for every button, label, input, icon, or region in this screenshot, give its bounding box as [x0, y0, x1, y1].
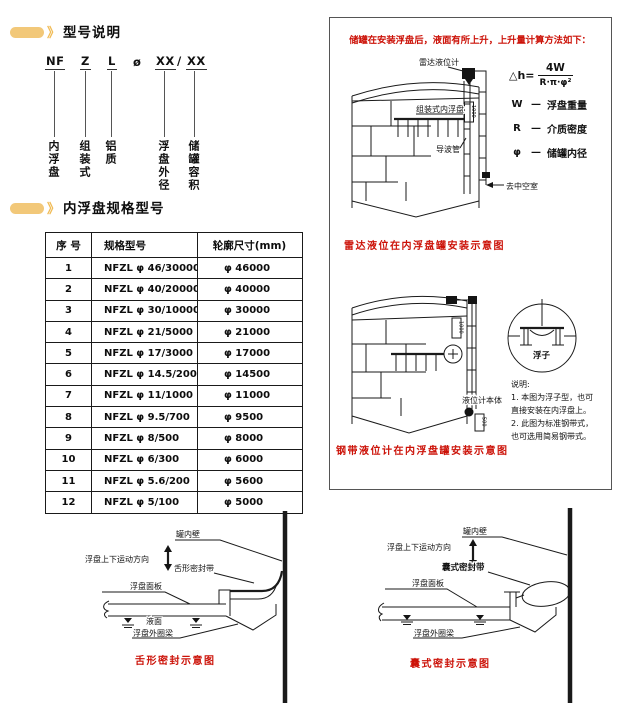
shell-course-line — [366, 320, 406, 416]
note-line: 直接安装在内浮盘上。 — [511, 405, 607, 418]
spec-cell: φ 8000 — [198, 428, 303, 449]
spec-row: 1NFZL φ 46/30000φ 46000 — [46, 258, 303, 279]
formula-lhs: △h= — [509, 69, 535, 82]
code-drop-line — [54, 71, 55, 137]
dimension-1000: 1000 — [470, 105, 476, 118]
spec-cell: φ 46000 — [198, 258, 303, 279]
liquid-hatch-line — [190, 625, 202, 628]
spec-cell: 3 — [46, 300, 92, 321]
legend-dash: — — [525, 99, 547, 110]
accent-badge — [10, 27, 44, 38]
spec-row: 6NFZL φ 14.5/2000φ 14500 — [46, 364, 303, 385]
spec-cell: 5 — [46, 343, 92, 364]
spec-cell: NFZL φ 6/300 — [92, 449, 198, 470]
code-drop-line — [111, 71, 112, 137]
liquid-surface-label: 液面 — [146, 616, 162, 626]
liquid-hatch-line — [122, 625, 134, 628]
liquid-level-icon — [403, 615, 411, 620]
code-part-xx1: XX — [155, 54, 176, 70]
leader-line — [448, 67, 463, 71]
tank1-caption: 雷达液位在内浮盘罐安装示意图 — [344, 237, 505, 252]
spec-cell: φ 5600 — [198, 470, 303, 491]
spec-cell: 10 — [46, 449, 92, 470]
legend-dash: — — [525, 123, 547, 134]
code-part-z: Z — [80, 54, 91, 70]
tank-roof-line — [352, 83, 479, 96]
legend-symbol: R — [509, 123, 525, 134]
spec-cell: 9 — [46, 428, 92, 449]
liquid-level-icon — [476, 615, 484, 620]
ring-beam-label: 浮盘外圈梁 — [414, 628, 454, 638]
ladder-rung-tick — [479, 92, 486, 180]
float-position-cross — [448, 349, 458, 359]
code-label-disc-diameter: 浮盘外径 — [158, 140, 169, 192]
spec-cell: 7 — [46, 385, 92, 406]
spec-row: 4NFZL φ 21/5000φ 21000 — [46, 321, 303, 342]
gauge-body-label: 液位计本体 — [462, 395, 502, 405]
spec-cell: NFZL φ 46/30000 — [92, 258, 198, 279]
code-label-inner-float-disc: 内浮盘 — [48, 140, 59, 179]
shell-course-line — [352, 126, 431, 182]
section-title-model: 型号说明 — [63, 21, 121, 41]
code-part-l: L — [107, 54, 117, 70]
radar-antenna — [465, 79, 473, 85]
spec-cell: NFZL φ 17/3000 — [92, 343, 198, 364]
leader-line — [488, 572, 530, 585]
code-label-assembled: 组装式 — [79, 140, 90, 179]
assembled-disc-label: 组装式内浮盘 — [416, 104, 464, 114]
formula-denominator: R·π·φ² — [538, 75, 574, 88]
liquid-hatch-line — [401, 622, 413, 625]
formula-legend-row: W — 浮盘重量 — [509, 97, 609, 112]
spec-row: 9NFZL φ 8/500φ 8000 — [46, 428, 303, 449]
accent-badge — [10, 203, 44, 214]
tank-roof-line — [352, 303, 467, 315]
col-header-size: 轮廓尺寸(mm) — [198, 233, 303, 258]
formula-numerator: 4W — [538, 62, 574, 75]
float-post-line — [524, 328, 560, 345]
arrow-up-icon — [469, 539, 477, 546]
leader-line — [175, 540, 282, 561]
tank-chord-line — [352, 98, 479, 101]
spec-cell: φ 6000 — [198, 449, 303, 470]
spec-cell: φ 14500 — [198, 364, 303, 385]
spec-row: 2NFZL φ 40/20000φ 40000 — [46, 279, 303, 300]
gauge-body-dot — [465, 408, 474, 417]
gauge-pipe-line — [472, 304, 476, 409]
shell-course-line — [352, 344, 426, 398]
spec-cell: NFZL φ 5.6/200 — [92, 470, 198, 491]
spec-row: 5NFZL φ 17/3000φ 17000 — [46, 343, 303, 364]
note-line: 2. 此图为标准钢带式， — [511, 418, 607, 431]
arrow-down-icon — [164, 564, 172, 571]
col-header-model: 规格型号 — [92, 233, 198, 258]
tongue-seal-caption: 舌形密封示意图 — [135, 654, 216, 667]
float-label: 浮子 — [533, 350, 551, 361]
note-line: 1. 本图为浮子型，也可 — [511, 392, 607, 405]
spec-cell: 2 — [46, 279, 92, 300]
spec-cell: NFZL φ 9.5/700 — [92, 407, 198, 428]
spec-table-body: 1NFZL φ 46/30000φ 460002NFZL φ 40/20000φ… — [46, 258, 303, 514]
float-dish-arc — [530, 330, 554, 336]
spec-cell: 1 — [46, 258, 92, 279]
external-pipe-line — [475, 71, 486, 185]
spec-cell: NFZL φ 14.5/2000 — [92, 364, 198, 385]
code-label-tank-volume: 储罐容积 — [188, 140, 199, 192]
spec-cell: NFZL φ 11/1000 — [92, 385, 198, 406]
spec-row: 3NFZL φ 30/10000φ 30000 — [46, 300, 303, 321]
to-chamber-label: 去中空室 — [506, 181, 538, 191]
dimension-1000: 1000 — [458, 321, 464, 334]
tongue-seal-label: 舌形密封带 — [174, 563, 214, 573]
dimension-500: 500 — [481, 417, 487, 427]
motion-direction-label: 浮盘上下运动方向 — [387, 542, 451, 552]
bladder-seal-caption: 囊式密封示意图 — [409, 657, 491, 670]
spec-row: 11NFZL φ 5.6/200φ 5600 — [46, 470, 303, 491]
leader-line — [102, 592, 190, 604]
rim-line — [516, 595, 524, 598]
bladder-seal-band — [521, 579, 572, 609]
section-title-specs: 内浮盘规格型号 — [63, 197, 165, 217]
leader-line — [214, 573, 254, 583]
spec-header-row: 序 号 规格型号 轮廓尺寸(mm) — [46, 233, 303, 258]
pipe-valve — [482, 172, 490, 178]
bladder-seal-label: 囊式密封带 — [441, 562, 485, 573]
spec-cell: 4 — [46, 321, 92, 342]
model-code-diagram: NF Z L ø XX / XX 内浮盘 组装式 铝质 浮盘外径 储罐容积 — [40, 50, 260, 200]
notes-block: 说明: 1. 本图为浮子型，也可 直接安装在内浮盘上。 2. 此图为标准钢带式，… — [511, 379, 607, 444]
code-label-aluminum: 铝质 — [105, 140, 116, 166]
code-part-slash: / — [177, 54, 182, 68]
pipe-elbow — [446, 296, 457, 304]
installation-panel: 储罐在安装浮盘后，液面有所上升，上升量计算方法如下： 1000 雷达液位计 组装… — [329, 17, 612, 490]
tank-foot-line — [352, 201, 479, 208]
bladder-seal-diagram: 罐内壁 浮盘上下运动方向 囊式密封带 浮盘面板 浮盘外圈梁 囊式密封示意图 — [330, 503, 618, 707]
liquid-hatch-line — [474, 622, 486, 625]
arrow-left-icon — [486, 182, 493, 188]
tank-wall-label: 罐内壁 — [176, 529, 200, 539]
tongue-seal-diagram: 罐内壁 浮盘上下运动方向 舌形密封带 浮盘面板 液面 浮盘外圈梁 舌形密封示意图 — [28, 503, 313, 707]
spec-cell: NFZL φ 40/20000 — [92, 279, 198, 300]
disc-leg-line — [396, 354, 436, 371]
waveguide-label: 导波管 — [436, 144, 460, 154]
tank2-caption: 钢带液位计在内浮盘罐安装示意图 — [336, 442, 509, 457]
tank-bottom-line — [352, 201, 479, 217]
tank-wall-label: 罐内壁 — [463, 526, 487, 536]
leader-line — [385, 589, 477, 607]
code-part-xx2: XX — [186, 54, 207, 70]
code-drop-line — [194, 71, 195, 137]
legend-desc: 浮盘重量 — [547, 97, 587, 112]
rim-line — [504, 592, 520, 620]
shell-course-line — [366, 101, 414, 201]
spec-cell: φ 17000 — [198, 343, 303, 364]
chevron-icon: 》 — [47, 22, 58, 41]
pipe-elbow — [468, 296, 477, 304]
arrow-up-icon — [164, 545, 172, 552]
catalog-page: { "colors":{"accent":"#f2c879","red":"#c… — [0, 0, 618, 707]
spec-cell: NFZL φ 21/5000 — [92, 321, 198, 342]
leader-line — [460, 138, 466, 148]
outer-ring-beam-line — [226, 604, 276, 630]
formula-fraction: 4W R·π·φ² — [538, 62, 574, 88]
code-part-phi: ø — [133, 55, 141, 69]
motion-direction-label: 浮盘上下运动方向 — [85, 554, 149, 564]
spec-row: 8NFZL φ 9.5/700φ 9500 — [46, 407, 303, 428]
code-part-nf: NF — [45, 54, 65, 70]
liquid-level-icon — [192, 618, 200, 623]
legend-symbol: W — [509, 99, 525, 110]
panel-title: 储罐在安装浮盘后，液面有所上升，上升量计算方法如下： — [335, 32, 605, 46]
formula-legend-row: φ — 储罐内径 — [509, 145, 609, 160]
radar-gauge-label: 雷达液位计 — [419, 57, 459, 67]
spec-cell: φ 9500 — [198, 407, 303, 428]
radar-gauge-body — [462, 68, 475, 79]
tank-bottom-line — [352, 416, 467, 433]
spec-cell: NFZL φ 30/10000 — [92, 300, 198, 321]
chevron-icon: 》 — [47, 198, 58, 217]
disc-leg-line — [398, 119, 458, 137]
disc-panel-label: 浮盘面板 — [130, 581, 162, 591]
disc-panel-line — [382, 607, 510, 620]
spec-row: 7NFZL φ 11/1000φ 11000 — [46, 385, 303, 406]
leader-line — [462, 537, 567, 555]
note-line: 说明: — [511, 379, 607, 392]
tongue-seal-band — [230, 571, 282, 591]
spec-table: 序 号 规格型号 轮廓尺寸(mm) 1NFZL φ 46/30000φ 4600… — [45, 232, 303, 514]
spec-cell: 6 — [46, 364, 92, 385]
disc-panel-label: 浮盘面板 — [412, 578, 444, 588]
rim-line — [219, 590, 230, 616]
legend-symbol: φ — [509, 147, 525, 158]
spec-cell: φ 30000 — [198, 300, 303, 321]
note-line: 也可选用简易钢带式。 — [511, 431, 607, 444]
spec-cell: φ 21000 — [198, 321, 303, 342]
tank-chord-line — [352, 316, 467, 320]
legend-dash: — — [525, 147, 547, 158]
disc-panel-line — [108, 604, 226, 616]
outer-ring-beam-line — [510, 607, 556, 632]
legend-desc: 介质密度 — [547, 121, 587, 136]
spec-cell: 11 — [46, 470, 92, 491]
formula-legend-row: R — 介质密度 — [509, 121, 609, 136]
col-header-index: 序 号 — [46, 233, 92, 258]
spec-cell: φ 40000 — [198, 279, 303, 300]
spec-cell: NFZL φ 8/500 — [92, 428, 198, 449]
rise-formula: △h= 4W R·π·φ² W — 浮盘重量 R — 介质密度 φ — 储罐内径 — [509, 62, 609, 160]
code-drop-line — [85, 71, 86, 137]
liquid-level-icon — [124, 618, 132, 623]
spec-cell: 8 — [46, 407, 92, 428]
ring-beam-label: 浮盘外圈梁 — [133, 628, 173, 638]
panel-break-line — [378, 603, 384, 621]
code-drop-line — [164, 71, 165, 137]
tank-foot-line — [352, 416, 467, 424]
spec-row: 10NFZL φ 6/300φ 6000 — [46, 449, 303, 470]
legend-desc: 储罐内径 — [547, 145, 587, 160]
spec-cell: φ 11000 — [198, 385, 303, 406]
